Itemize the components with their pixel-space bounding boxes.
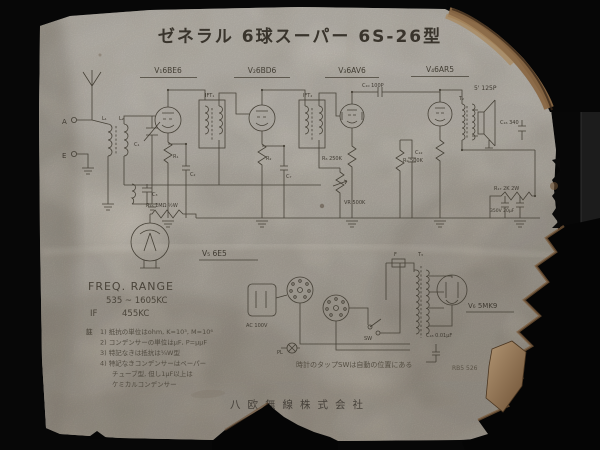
component-label: R₁₇ 2K 2W — [494, 186, 519, 192]
component-label: R₉ 500K — [403, 158, 424, 164]
component-label: C₁₂ — [415, 150, 423, 156]
clock-switch-caption: 時計のタップSWは自動の位置にある — [296, 360, 412, 369]
component-label: T₃ — [417, 252, 423, 258]
component-label: L₂ — [119, 116, 124, 122]
note-line-3: 3) 特記なきは抵抗は¼W型 — [100, 348, 180, 357]
component-label: A — [62, 118, 67, 126]
component-label: R₁ — [173, 154, 178, 160]
radio-schematic-photo: ゼネラル 6球スーパー 6S-26型 V₁6BE6 V₂6BD6 V₃6AV6 … — [0, 0, 600, 450]
note-line-2: 2) コンデンサーの単位はμF, P=μμF — [100, 338, 207, 347]
component-label: C₁₈ 0.01μF — [426, 333, 452, 339]
if-label: IF — [90, 309, 98, 319]
note-line-6: ケミカルコンデンサー — [112, 380, 177, 389]
tube-label-v5: V₅ 6E5 — [202, 249, 227, 258]
component-label: SW — [364, 336, 372, 342]
note-line-5: チューブ型, 但し1μF以上は — [112, 369, 193, 378]
notes-heading: 註 — [86, 327, 93, 336]
company-name: 八欧無線株式会社 — [230, 398, 370, 411]
torn-edge-spot — [550, 182, 558, 190]
schematic-title: ゼネラル 6球スーパー 6S-26型 — [158, 26, 442, 47]
if-value: 455KC — [122, 309, 149, 319]
component-label: C₁ — [134, 142, 140, 148]
component-label: C₁₆ 340 — [500, 120, 519, 126]
component-label: C₂ — [190, 172, 196, 178]
component-label: C₇ — [286, 174, 292, 180]
tube-label-v1: V₁6BE6 — [154, 66, 182, 75]
component-label: R₆ 250K — [322, 156, 343, 162]
note-line-1: 1) 抵抗の単位はohm, K=10³, M=10⁶ — [100, 327, 213, 336]
note-line-4: 4) 特記なきコンデンサーはペーパー — [100, 359, 206, 368]
freq-range-value: 535 ~ 1605KC — [106, 296, 167, 306]
tube-label-v4: V₄6AR5 — [426, 65, 454, 74]
component-label: R₂ — [266, 156, 271, 162]
component-label: VR 500K — [344, 200, 366, 206]
component-label: IFT₂ — [303, 93, 312, 99]
component-label: L₁ — [102, 116, 107, 122]
paper-speck — [99, 54, 102, 57]
component-label: E — [62, 152, 66, 160]
component-label: IFT₁ — [205, 93, 214, 99]
component-label: T₂ — [458, 96, 464, 102]
tube-label-v2: V₂6BD6 — [248, 66, 277, 75]
component-label: R₁₆ 1MΩ ½W — [146, 202, 178, 209]
component-label: 350V 20μF — [490, 208, 515, 214]
component-label: C₁₀ 100P — [362, 83, 384, 89]
document-number: RB5 526 — [452, 365, 478, 372]
tube-label-v6: V₆ 5MK9 — [468, 302, 497, 310]
tube-label-v3: V₃6AV6 — [338, 66, 366, 75]
component-label: PL — [277, 350, 283, 356]
component-label: AC 100V — [246, 323, 268, 329]
component-label: F — [394, 252, 397, 258]
component-label: C₃ — [152, 192, 158, 198]
speaker-size-label: 5' 125P — [474, 85, 497, 92]
freq-range-title: FREQ. RANGE — [88, 280, 174, 293]
photo-of-schematic: ゼネラル 6球スーパー 6S-26型 V₁6BE6 V₂6BD6 V₃6AV6 … — [0, 0, 600, 450]
ink-speck — [320, 204, 324, 208]
